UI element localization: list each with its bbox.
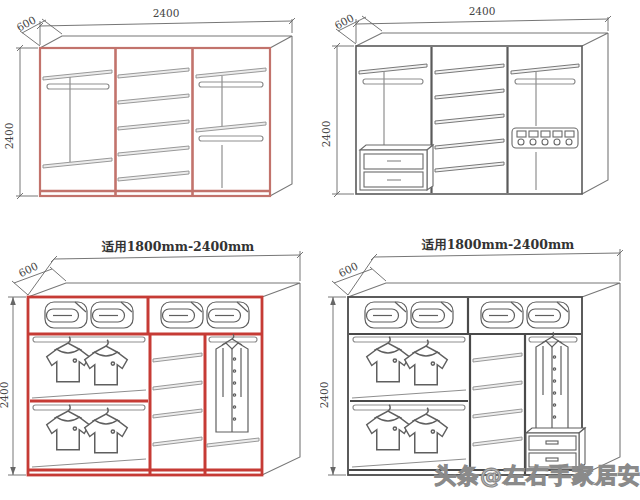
right-hanging-section bbox=[196, 68, 266, 188]
quilt-icon bbox=[45, 302, 87, 328]
hanging-rod bbox=[199, 136, 263, 141]
quilt-icon bbox=[365, 302, 407, 328]
center-shelf-section bbox=[435, 64, 504, 172]
coat-icon bbox=[536, 332, 568, 430]
hanging-rod bbox=[199, 82, 263, 87]
depth-dimension: 600 bbox=[332, 11, 382, 44]
left-hanging-section bbox=[359, 64, 433, 190]
center-shelf-section bbox=[118, 68, 189, 181]
tshirt-icon bbox=[367, 405, 410, 450]
quilt-icon bbox=[527, 302, 569, 328]
quilt-icon bbox=[161, 302, 203, 328]
wardrobe-design-sheet: 2400 600 2400 bbox=[0, 0, 640, 500]
width-label: 2400 bbox=[153, 7, 180, 19]
depth-dimension: 600 bbox=[332, 260, 386, 295]
height-dimension: 2400 bbox=[320, 43, 354, 197]
depth-label: 600 bbox=[332, 11, 355, 31]
height-label: 2400 bbox=[3, 123, 15, 150]
quilt-icon bbox=[207, 302, 249, 328]
quilt-icon bbox=[91, 302, 133, 328]
belt-rack bbox=[512, 128, 578, 148]
width-dimension: 2400 bbox=[37, 7, 295, 45]
coat-hanging-section bbox=[207, 334, 259, 447]
hanging-rod bbox=[353, 337, 465, 342]
depth-label: 600 bbox=[337, 260, 360, 280]
fit-range-label: 适用1800mm-2400mm bbox=[421, 237, 575, 252]
coat-icon bbox=[216, 334, 248, 432]
quilt-icon bbox=[481, 302, 523, 328]
tshirt-icon bbox=[47, 337, 90, 382]
wardrobe-diagram-black-empty: 2400 600 2400 bbox=[320, 0, 640, 235]
height-dimension: 2400 bbox=[320, 297, 346, 475]
wardrobe-diagram-red-empty: 2400 600 2400 bbox=[0, 0, 320, 235]
wardrobe-diagram-red-illustrated: 适用1800mm-2400mm 600 2400 bbox=[0, 235, 320, 500]
depth-label: 600 bbox=[17, 260, 40, 280]
quilt-icon bbox=[411, 302, 453, 328]
tshirt-icon bbox=[85, 340, 128, 385]
center-shelf-section bbox=[473, 353, 522, 446]
width-dimension: 2400 bbox=[353, 5, 611, 43]
hanging-rod bbox=[363, 79, 423, 84]
tshirt-icon bbox=[47, 405, 90, 450]
coat-hanging-section bbox=[526, 332, 585, 469]
hanging-rod bbox=[353, 405, 465, 410]
right-hanging-section bbox=[511, 64, 579, 190]
hanging-rod bbox=[515, 79, 575, 84]
depth-dimension: 600 bbox=[14, 13, 62, 46]
fit-range-dimension: 适用1800mm-2400mm bbox=[28, 239, 303, 295]
width-label: 2400 bbox=[469, 5, 496, 17]
height-label: 2400 bbox=[0, 382, 10, 409]
height-dimension: 2400 bbox=[0, 297, 26, 475]
tshirt-icon bbox=[405, 408, 448, 453]
watermark-text: 头条@左右手家居安装 bbox=[434, 461, 640, 491]
left-hanging-section bbox=[43, 70, 112, 168]
tshirt-icon bbox=[367, 337, 410, 382]
center-shelf-section bbox=[153, 353, 202, 446]
tshirt-icon bbox=[405, 340, 448, 385]
height-label: 2400 bbox=[320, 121, 332, 148]
fit-range-label: 适用1800mm-2400mm bbox=[101, 239, 255, 254]
hanging-rod bbox=[33, 405, 145, 410]
hanging-rod bbox=[47, 84, 109, 89]
drawer-unit bbox=[360, 145, 433, 190]
cabinet-frame bbox=[40, 36, 292, 196]
height-dimension: 2400 bbox=[3, 45, 38, 199]
hanging-rod bbox=[33, 337, 145, 342]
height-label: 2400 bbox=[320, 382, 330, 409]
tshirt-icon bbox=[85, 408, 128, 453]
depth-dimension: 600 bbox=[12, 260, 66, 295]
fit-range-dimension: 适用1800mm-2400mm bbox=[348, 237, 623, 295]
